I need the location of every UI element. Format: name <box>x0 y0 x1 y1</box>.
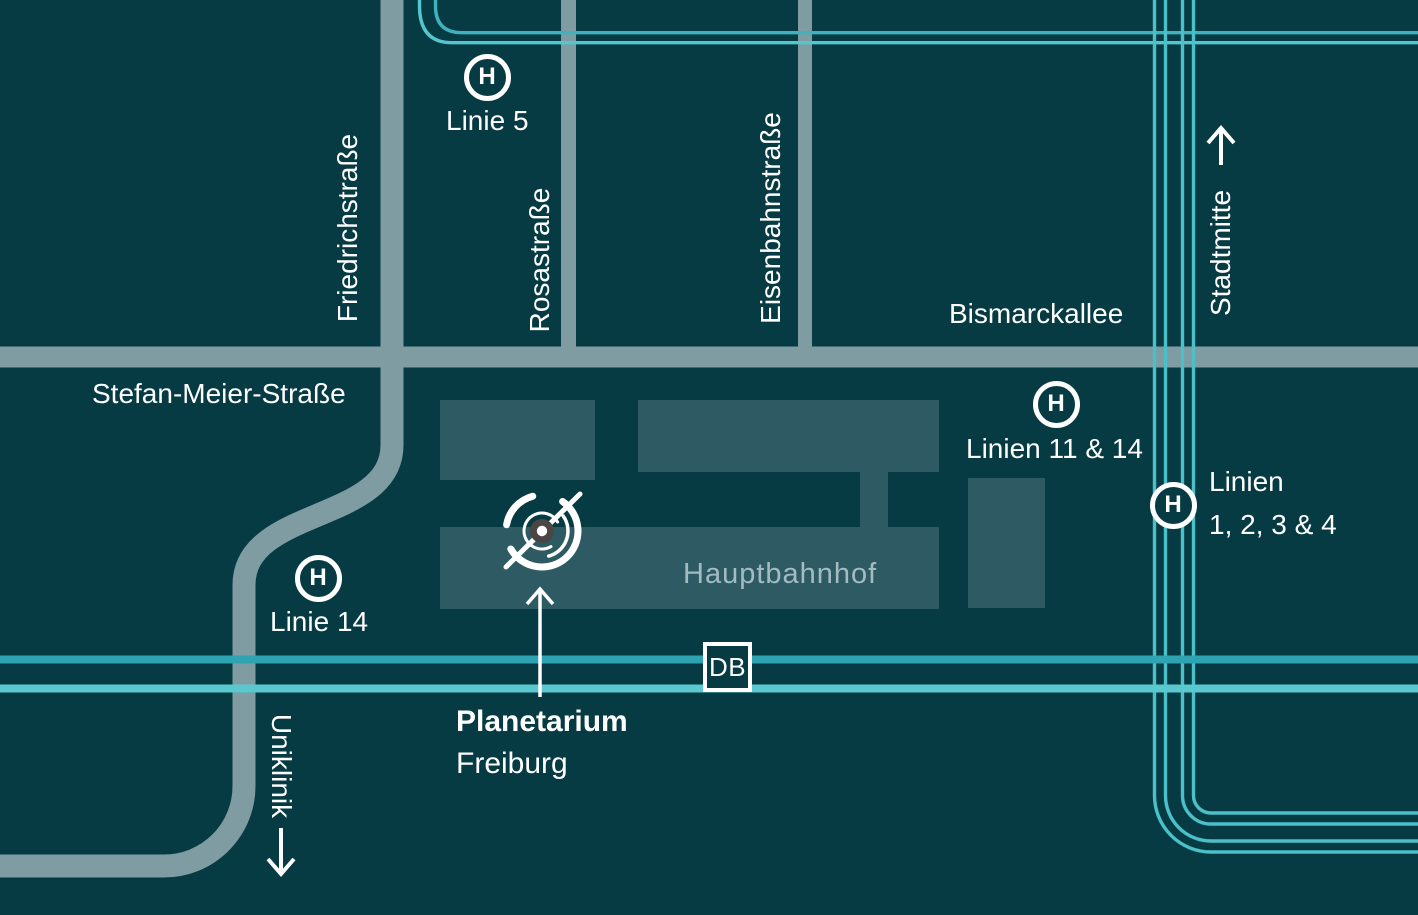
db-label: DB <box>709 652 746 683</box>
tram-stop-icon-linie14: H <box>295 555 342 602</box>
road-friedrichstrasse <box>0 0 392 866</box>
street-label-bismarckallee: Bismarckallee <box>949 300 1123 328</box>
freiburg-planetarium-map: DB H H H H Linie 5 Linie 14 Linien 11 & … <box>0 0 1418 915</box>
stop-label-linien-11-14: Linien 11 & 14 <box>966 435 1143 463</box>
tram-line-linie5-north <box>436 0 1418 33</box>
poi-label-freiburg: Freiburg <box>456 749 568 779</box>
station-label-hauptbahnhof: Hauptbahnhof <box>683 560 877 589</box>
stop-label-linie14: Linie 14 <box>270 608 368 636</box>
station-building-block <box>968 478 1045 608</box>
direction-label-uniklinik: Uniklinik <box>267 714 295 818</box>
street-label-rosastrasse: Rosastraße <box>526 188 554 333</box>
uniklinik-arrow-icon <box>263 826 299 880</box>
street-label-stefan-meier-strasse: Stefan-Meier-Straße <box>92 380 346 408</box>
station-building-block <box>440 400 595 480</box>
stop-symbol: H <box>478 63 495 91</box>
tram-stop-icon-linie5: H <box>464 54 511 101</box>
station-building-block <box>638 400 939 472</box>
stop-symbol: H <box>1164 491 1181 519</box>
stop-label-linien-1-2-3-4-line1: Linien <box>1209 468 1284 496</box>
station-building-block <box>860 472 888 530</box>
stop-symbol: H <box>1047 390 1064 418</box>
db-station-marker: DB <box>703 642 752 692</box>
tram-stop-icon-linien-1-2-3-4: H <box>1150 482 1197 529</box>
stop-label-linie5: Linie 5 <box>446 107 529 135</box>
stadtmitte-arrow-icon <box>1203 123 1239 167</box>
poi-label-planetarium: Planetarium <box>456 707 628 737</box>
stop-symbol: H <box>309 564 326 592</box>
street-label-eisenbahnstrasse: Eisenbahnstraße <box>757 112 785 324</box>
direction-label-stadtmitte: Stadtmitte <box>1207 190 1235 316</box>
street-label-friedrichstrasse: Friedrichstraße <box>334 134 362 322</box>
stop-label-linien-1-2-3-4-line2: 1, 2, 3 & 4 <box>1209 511 1337 539</box>
tram-stop-icon-linien-11-14: H <box>1033 381 1080 428</box>
